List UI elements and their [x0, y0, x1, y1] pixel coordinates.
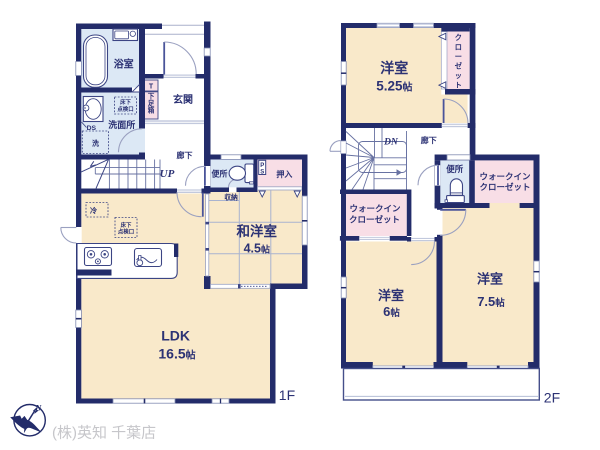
svg-text:冷: 冷: [90, 206, 97, 215]
svg-text:P: P: [260, 163, 264, 169]
svg-text:ロ: ロ: [455, 43, 462, 52]
svg-text:浴室: 浴室: [114, 58, 134, 71]
svg-text:1F: 1F: [279, 387, 295, 403]
svg-text:T: T: [149, 83, 154, 90]
svg-text:ク: ク: [455, 33, 462, 42]
svg-text:ウォークイン: ウォークイン: [349, 203, 401, 213]
svg-text:押入: 押入: [276, 169, 292, 179]
svg-text:(株)英知 千葉店: (株)英知 千葉店: [52, 424, 156, 442]
svg-text:S: S: [260, 170, 264, 176]
svg-text:ウォークイン: ウォークイン: [479, 172, 531, 182]
svg-text:洗面所: 洗面所: [108, 119, 135, 130]
svg-text:N: N: [35, 404, 43, 413]
svg-text:洗: 洗: [92, 138, 99, 147]
svg-text:DS: DS: [87, 125, 97, 132]
svg-text:点検口: 点検口: [118, 227, 134, 235]
svg-text:箱: 箱: [148, 106, 155, 115]
svg-text:下: 下: [148, 93, 155, 101]
svg-text:便所: 便所: [446, 164, 464, 174]
svg-text:廊下: 廊下: [421, 135, 437, 145]
svg-text:収納: 収納: [224, 193, 238, 202]
svg-text:足: 足: [148, 100, 155, 108]
svg-text:2F: 2F: [544, 389, 560, 405]
svg-text:ト: ト: [455, 81, 462, 90]
svg-text:ー: ー: [455, 52, 462, 61]
svg-text:ッ: ッ: [455, 71, 462, 80]
svg-text:便所: 便所: [212, 169, 228, 179]
svg-text:点検口: 点検口: [117, 105, 133, 113]
svg-text:洋室: 洋室: [380, 60, 408, 76]
svg-text:床下: 床下: [121, 221, 132, 229]
svg-text:DN: DN: [383, 138, 399, 148]
svg-text:ゼ: ゼ: [455, 62, 463, 71]
svg-text:和洋室: 和洋室: [237, 223, 278, 239]
svg-text:玄関: 玄関: [173, 93, 193, 106]
svg-text:廊下: 廊下: [177, 150, 193, 160]
svg-text:LDK: LDK: [161, 327, 190, 343]
svg-text:洋室: 洋室: [378, 288, 404, 303]
svg-text:UP: UP: [160, 168, 175, 180]
svg-text:洋室: 洋室: [477, 272, 503, 287]
svg-text:クローゼット: クローゼット: [349, 215, 400, 225]
svg-text:クローゼット: クローゼット: [479, 182, 530, 192]
svg-text:床下: 床下: [120, 98, 131, 106]
svg-text:4.5帖: 4.5帖: [244, 242, 270, 256]
